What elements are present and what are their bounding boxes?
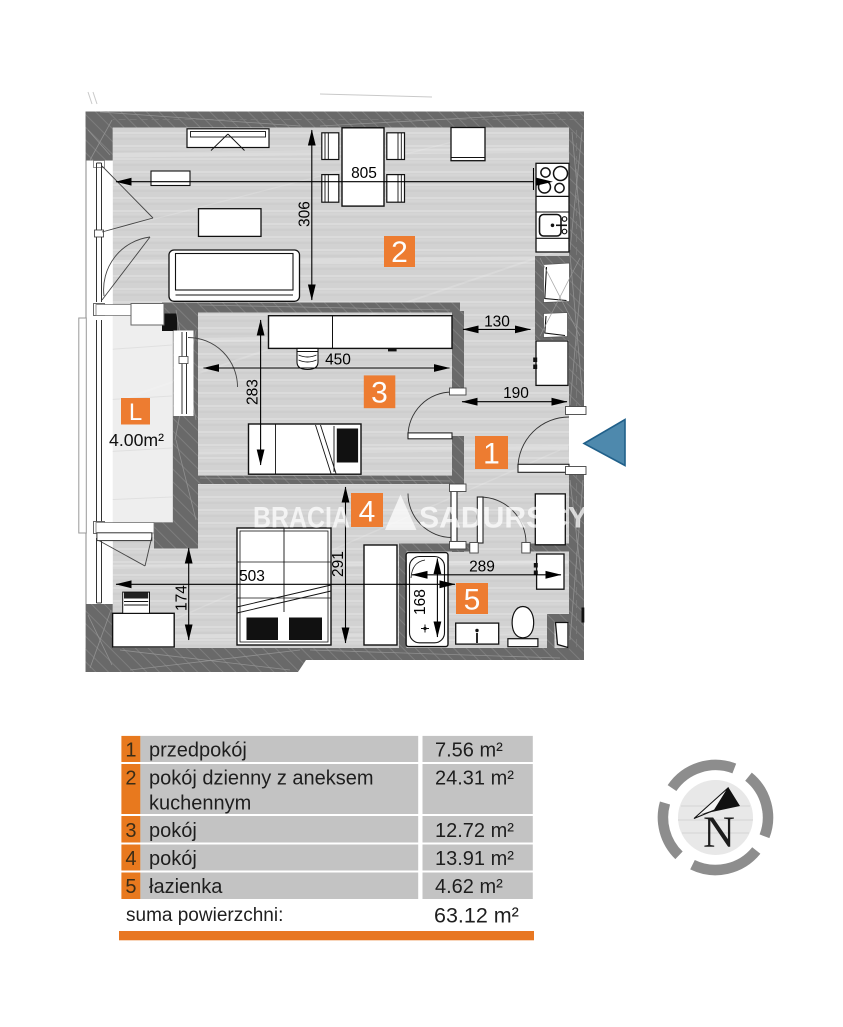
svg-text:503: 503 bbox=[239, 568, 265, 585]
svg-text:63.12 m²: 63.12 m² bbox=[434, 904, 519, 928]
svg-text:24.31 m²: 24.31 m² bbox=[435, 768, 514, 790]
svg-text:5: 5 bbox=[125, 876, 136, 898]
svg-text:1: 1 bbox=[483, 438, 500, 471]
svg-text:4: 4 bbox=[359, 496, 376, 529]
svg-text:L: L bbox=[129, 399, 142, 426]
svg-text:kuchennym: kuchennym bbox=[149, 793, 251, 815]
svg-text:306: 306 bbox=[297, 201, 314, 227]
svg-text:174: 174 bbox=[174, 585, 191, 611]
svg-text:3: 3 bbox=[125, 820, 136, 842]
svg-text:4: 4 bbox=[125, 848, 136, 870]
svg-text:168: 168 bbox=[412, 589, 429, 615]
svg-text:4.00m²: 4.00m² bbox=[109, 430, 164, 450]
svg-text:130: 130 bbox=[484, 314, 510, 331]
svg-text:450: 450 bbox=[325, 352, 351, 369]
svg-text:291: 291 bbox=[330, 551, 347, 577]
svg-text:13.91 m²: 13.91 m² bbox=[435, 848, 514, 870]
svg-text:pokój: pokój bbox=[149, 820, 197, 842]
svg-text:3: 3 bbox=[371, 377, 388, 410]
svg-text:łazienka: łazienka bbox=[149, 876, 223, 898]
svg-text:2: 2 bbox=[125, 768, 136, 790]
svg-text:4.62 m²: 4.62 m² bbox=[435, 876, 503, 898]
svg-text:BRACIA: BRACIA bbox=[253, 502, 350, 535]
svg-text:190: 190 bbox=[503, 385, 529, 402]
svg-text:1: 1 bbox=[125, 740, 136, 762]
svg-text:12.72 m²: 12.72 m² bbox=[435, 820, 514, 842]
svg-text:2: 2 bbox=[391, 236, 408, 269]
svg-text:5: 5 bbox=[464, 584, 481, 617]
svg-text:suma powierzchni:: suma powierzchni: bbox=[126, 905, 283, 926]
svg-text:805: 805 bbox=[351, 165, 377, 182]
svg-text:przedpokój: przedpokój bbox=[149, 740, 247, 762]
svg-text:7.56 m²: 7.56 m² bbox=[435, 740, 503, 762]
svg-text:pokój dzienny z aneksem: pokój dzienny z aneksem bbox=[149, 768, 374, 790]
svg-text:283: 283 bbox=[245, 379, 262, 405]
svg-text:N: N bbox=[703, 808, 735, 857]
svg-text:pokój: pokój bbox=[149, 848, 197, 870]
svg-text:289: 289 bbox=[469, 559, 495, 576]
svg-text:SADURSCY: SADURSCY bbox=[419, 502, 588, 535]
